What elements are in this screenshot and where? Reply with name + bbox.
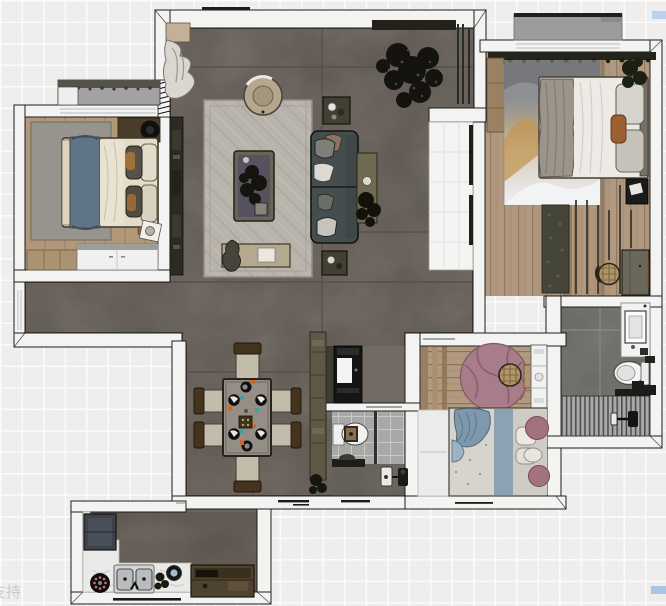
- svg-text:支持: 支持: [0, 584, 21, 601]
